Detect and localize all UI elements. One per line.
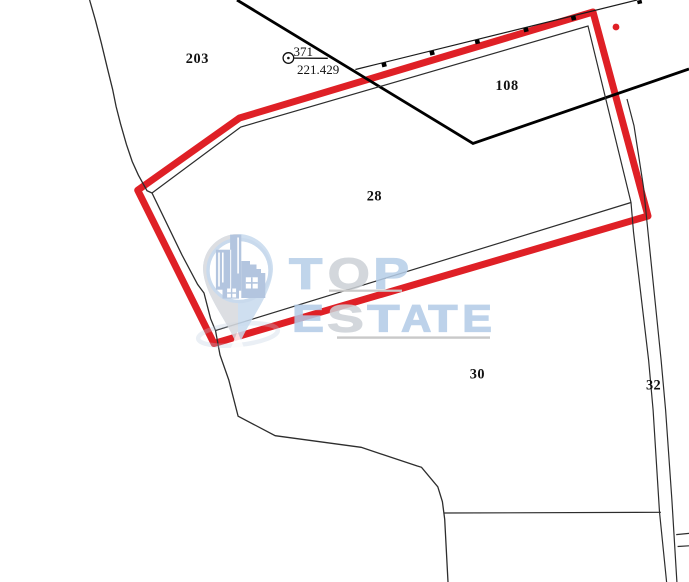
svg-text:T: T: [428, 298, 457, 340]
svg-text:32: 32: [646, 378, 661, 394]
svg-text:T: T: [289, 249, 322, 299]
svg-text:30: 30: [470, 366, 485, 382]
svg-text:221.429: 221.429: [297, 62, 339, 77]
svg-text:A: A: [401, 298, 431, 340]
svg-text:E: E: [292, 298, 324, 340]
svg-text:T: T: [367, 297, 399, 340]
svg-text:E: E: [462, 298, 492, 340]
svg-text:S: S: [327, 297, 363, 340]
svg-text:371: 371: [294, 44, 314, 59]
svg-text:108: 108: [496, 78, 519, 94]
svg-text:203: 203: [186, 51, 209, 67]
svg-text:28: 28: [367, 189, 382, 205]
